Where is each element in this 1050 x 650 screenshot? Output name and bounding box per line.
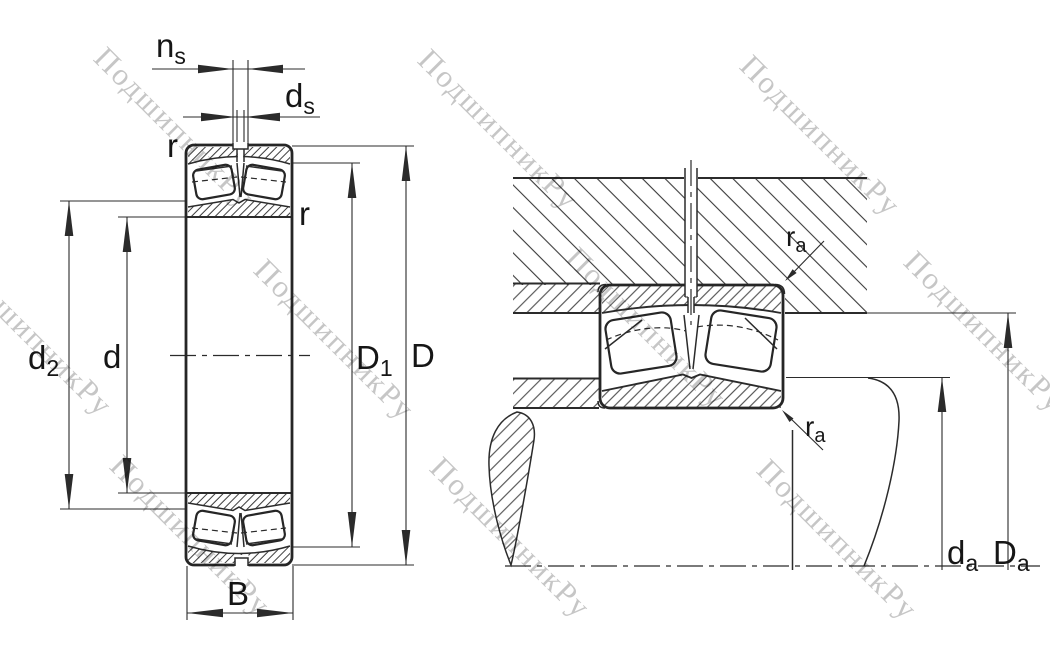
label-D: D: [411, 337, 435, 374]
label-ds: ds: [285, 77, 315, 119]
bearing-drawing-page: ns ds r r d2 d D1 D B ra ra da Da Подшип…: [0, 0, 1050, 650]
technical-drawing-canvas: ns ds r r d2 d D1 D B ra ra da Da: [0, 0, 1050, 650]
label-r-outer: r: [167, 127, 178, 164]
mounting-dimension-lines: [867, 313, 1016, 570]
label-ra-shaft: ra: [805, 411, 826, 447]
label-da: da: [947, 534, 978, 576]
lubrication-groove-bottom: [235, 555, 249, 567]
label-r-bore: r: [299, 195, 310, 232]
mounting-view: [489, 160, 1040, 570]
label-B: B: [227, 575, 249, 612]
label-ns: ns: [156, 27, 186, 69]
label-d2: d2: [28, 339, 59, 381]
label-D1: D1: [356, 339, 393, 381]
bearing-section-bottom: [186, 493, 292, 563]
housing-shoulder: [513, 285, 606, 314]
label-Da: Da: [993, 534, 1030, 576]
label-d: d: [103, 338, 121, 375]
